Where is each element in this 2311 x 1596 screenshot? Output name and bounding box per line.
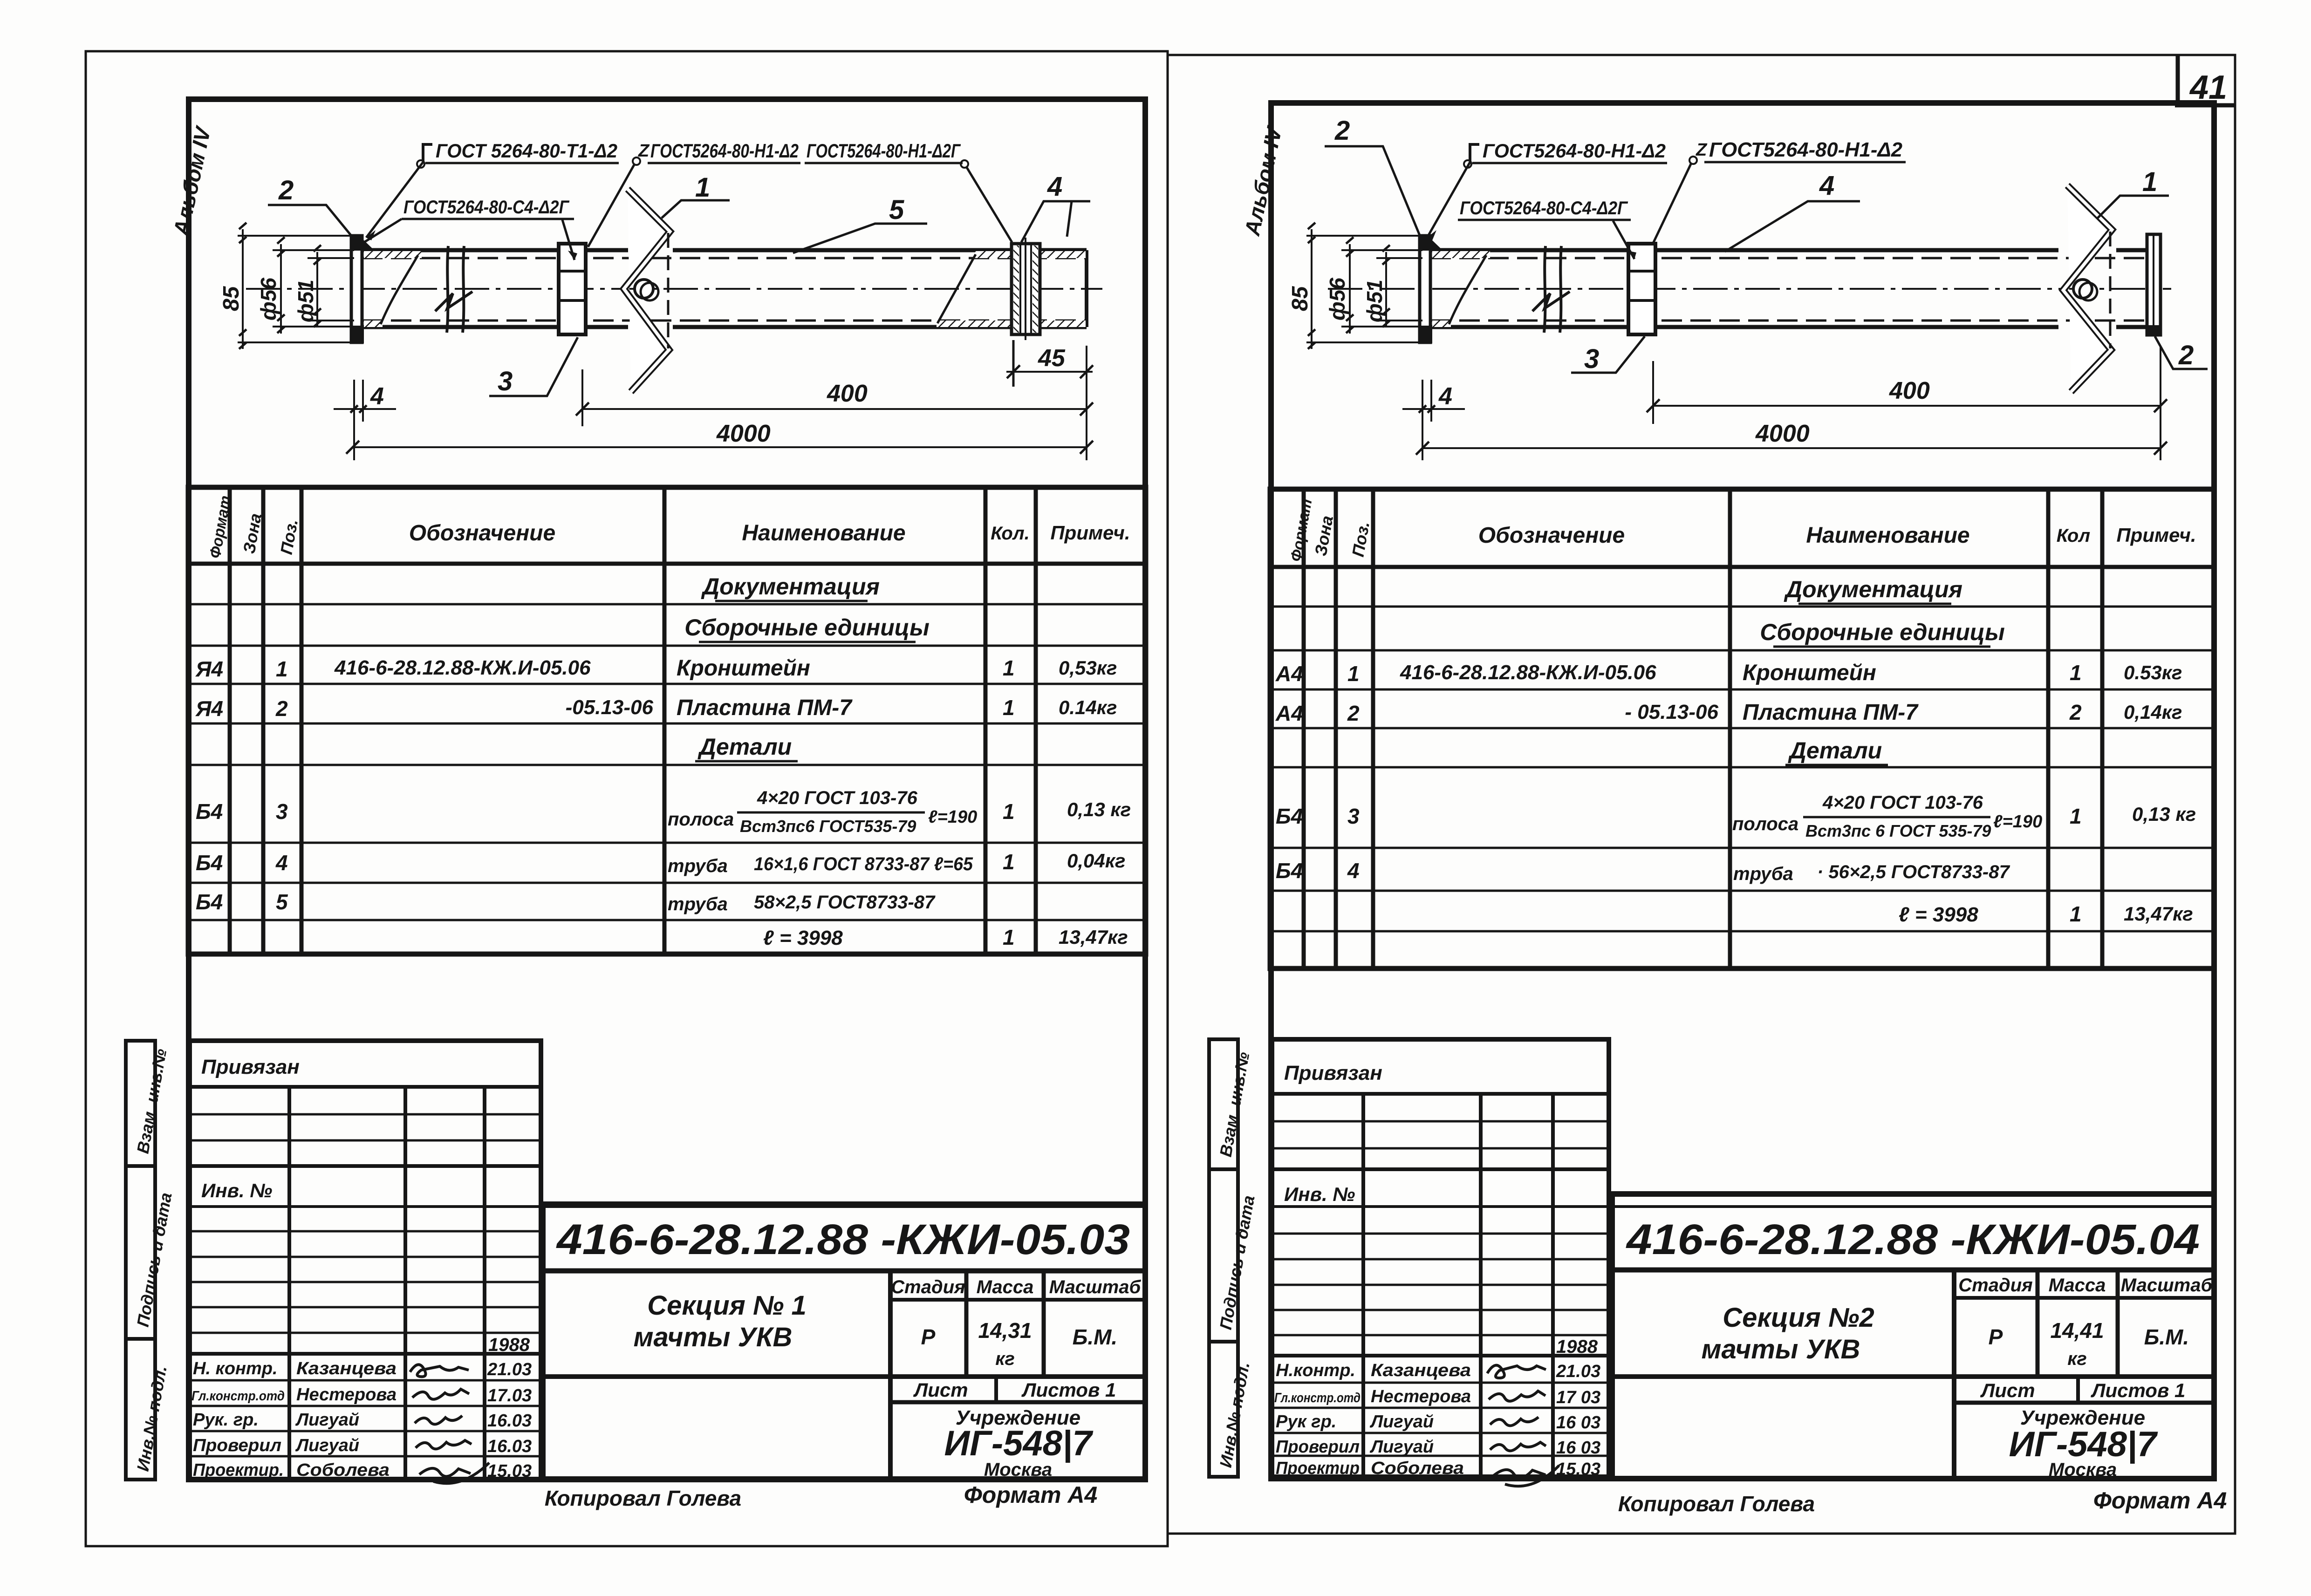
svg-text:2: 2 [2178,340,2194,370]
svg-text:ф56: ф56 [256,278,280,321]
svg-text:Привязан: Привязан [1284,1062,1382,1084]
svg-text:1: 1 [1003,850,1015,874]
svg-text:21.03: 21.03 [487,1360,532,1379]
svg-text:1: 1 [695,172,710,203]
svg-text:Р: Р [921,1325,936,1349]
svg-text:Наименование: Наименование [742,521,905,546]
svg-text:Привязан: Привязан [201,1056,300,1078]
svg-text:16 03: 16 03 [1556,1413,1600,1432]
svg-text:85: 85 [219,286,244,311]
svg-text:2: 2 [2069,700,2082,724]
svg-text:ℓ = 3998: ℓ = 3998 [1899,903,1978,926]
svg-text:Лигуай: Лигуай [295,1436,359,1455]
svg-text:2: 2 [1347,701,1360,725]
svg-text:Б4: Б4 [196,851,223,875]
svg-text:Лигуай: Лигуай [1369,1437,1434,1457]
svg-text:Наименование: Наименование [1806,523,1969,548]
svg-text:2: 2 [1334,116,1350,146]
svg-text:0,13 кг: 0,13 кг [2132,803,2196,825]
svg-text:5: 5 [276,890,288,914]
svg-text:полоса: полоса [1732,814,1798,834]
svg-text:1: 1 [2070,661,2082,685]
svg-text:Лигуай: Лигуай [1369,1412,1434,1432]
svg-text:16×1,6 ГОСТ 8733-87 ℓ=65: 16×1,6 ГОСТ 8733-87 ℓ=65 [754,854,973,874]
svg-text:Проектир.: Проектир. [193,1460,284,1480]
svg-text:Гл.констр.отд: Гл.констр.отд [1274,1391,1361,1405]
svg-text:58×2,5 ГОСТ8733-87: 58×2,5 ГОСТ8733-87 [754,892,936,913]
svg-text:Р: Р [1989,1325,2003,1349]
svg-text:1988: 1988 [1556,1337,1598,1357]
svg-text:ИГ-548|7: ИГ-548|7 [944,1424,1094,1463]
svg-text:Формат А4: Формат А4 [964,1482,1098,1508]
svg-text:Б.М.: Б.М. [2144,1325,2189,1349]
svg-text:4×20 ГОСТ 103-76: 4×20 ГОСТ 103-76 [1822,792,1983,813]
svg-text:16.03: 16.03 [487,1437,532,1456]
svg-text:Детали: Детали [1788,737,1882,764]
svg-text:ф51: ф51 [294,280,318,322]
svg-text:4: 4 [1819,171,1834,201]
svg-text:Кол.: Кол. [991,523,1030,544]
svg-text:85: 85 [1288,286,1313,311]
svg-text:4: 4 [1438,383,1452,410]
svg-text:3: 3 [1584,344,1599,374]
svg-text:14,41: 14,41 [2050,1318,2104,1343]
svg-text:3: 3 [276,799,288,824]
svg-text:А4: А4 [1275,662,1303,686]
svg-text:Копировал Голева: Копировал Голева [545,1486,741,1510]
svg-text:Москва: Москва [2049,1460,2117,1480]
svg-text:труба: труба [668,894,728,914]
svg-text:А4: А4 [1275,701,1303,725]
svg-text:Н.контр.: Н.контр. [1276,1361,1355,1380]
svg-text:ГОСТ5264-80-С4-Δ2Г: ГОСТ5264-80-С4-Δ2Г [403,197,570,218]
svg-text:Сборочные единицы: Сборочные единицы [1760,619,2005,645]
svg-text:4: 4 [1347,859,1360,883]
svg-text:Я4: Я4 [195,657,223,681]
svg-text:Сборочные единицы: Сборочные единицы [684,614,930,641]
svg-text:ℓ=190: ℓ=190 [1993,812,2042,832]
svg-text:400: 400 [1889,377,1930,404]
svg-text:Пластина ПМ-7: Пластина ПМ-7 [677,696,853,720]
svg-text:Б4: Б4 [196,890,223,914]
svg-text:21.03: 21.03 [1556,1362,1600,1381]
svg-text:13,47кг: 13,47кг [1059,926,1128,948]
svg-text:Кронштейн: Кронштейн [1743,661,1876,685]
svg-text:416-6-28.12.88 -КЖИ-05.03: 416-6-28.12.88 -КЖИ-05.03 [556,1216,1130,1263]
svg-text:полоса: полоса [668,809,734,830]
svg-text:Формат А4: Формат А4 [2093,1487,2227,1514]
svg-text:Примеч.: Примеч. [1050,522,1130,544]
svg-text:14,31: 14,31 [978,1318,1032,1343]
svg-text:1: 1 [1003,656,1015,680]
svg-text:труба: труба [1733,864,1793,884]
svg-text:1: 1 [2142,167,2157,197]
svg-text:1: 1 [1003,696,1015,720]
svg-text:Н. контр.: Н. контр. [193,1359,278,1378]
svg-text:0,04кг: 0,04кг [1067,850,1125,872]
svg-text:Рук. гр.: Рук. гр. [193,1410,259,1430]
svg-text:Б4: Б4 [1276,804,1303,828]
svg-text:2: 2 [278,175,294,205]
svg-text:0,14кг: 0,14кг [2124,701,2182,723]
svg-text:4: 4 [275,851,288,875]
svg-text:Гл.констр.отд: Гл.констр.отд [191,1389,285,1404]
svg-text:Z: Z [1696,140,1708,160]
svg-text:0.53кг: 0.53кг [2124,662,2182,683]
svg-text:Я4: Я4 [195,696,223,721]
svg-text:Копировал Голева: Копировал Голева [1618,1492,1815,1516]
svg-text:ГОСТ5264-80-Н1-Δ2: ГОСТ5264-80-Н1-Δ2 [1709,138,1903,161]
svg-text:416-6-28.12.88-КЖ.И-05.06: 416-6-28.12.88-КЖ.И-05.06 [1400,661,1656,684]
svg-text:Соболева: Соболева [1371,1459,1464,1478]
svg-text:17 03: 17 03 [1556,1388,1600,1407]
svg-text:2: 2 [275,696,288,721]
svg-text:ГОСТ5264-80-Н1-Δ2: ГОСТ5264-80-Н1-Δ2 [650,140,799,162]
svg-text:ф56: ф56 [1325,278,1349,321]
svg-text:4000: 4000 [1755,420,1810,447]
svg-text:ГОСТ5264-80-Н1-Δ2: ГОСТ5264-80-Н1-Δ2 [1483,140,1666,162]
svg-text:Б4: Б4 [196,799,223,824]
svg-text:0,13 кг: 0,13 кг [1067,798,1131,820]
svg-text:· 56×2,5 ГОСТ8733-87: · 56×2,5 ГОСТ8733-87 [1817,862,2010,882]
svg-text:13,47кг: 13,47кг [2124,903,2193,925]
svg-text:Б.М.: Б.М. [1073,1325,1117,1349]
svg-text:4: 4 [1047,171,1062,202]
svg-text:416-6-28.12.88 -КЖИ-05.04: 416-6-28.12.88 -КЖИ-05.04 [1626,1216,2200,1263]
svg-text:Казанцева: Казанцева [1371,1361,1471,1380]
svg-text:Z: Z [638,141,650,161]
svg-text:-05.13-06: -05.13-06 [566,696,654,719]
svg-text:Масштаб: Масштаб [2121,1275,2213,1296]
svg-text:труба: труба [668,856,728,876]
svg-text:Кронштейн: Кронштейн [677,656,810,681]
svg-text:Детали: Детали [697,734,792,760]
svg-text:5: 5 [889,195,904,225]
svg-text:0.14кг: 0.14кг [1059,696,1117,718]
svg-text:Казанцева: Казанцева [296,1359,397,1378]
svg-text:Пластина ПМ-7: Пластина ПМ-7 [1743,700,1919,725]
svg-text:Нестерова: Нестерова [1371,1387,1471,1406]
svg-text:1988: 1988 [488,1335,530,1355]
svg-text:15.03: 15.03 [1556,1460,1600,1479]
svg-text:Москва: Москва [984,1460,1052,1480]
svg-text:Документация: Документация [1784,576,1962,602]
svg-text:Инв. №: Инв. № [1284,1183,1355,1205]
svg-text:4000: 4000 [716,420,771,447]
svg-text:1: 1 [2070,804,2082,828]
svg-text:мачты УКВ: мачты УКВ [634,1322,793,1352]
svg-text:ф51: ф51 [1362,280,1387,322]
svg-text:Проверил: Проверил [1276,1437,1360,1457]
svg-text:Секция № 1: Секция № 1 [647,1290,807,1321]
svg-text:400: 400 [827,380,868,407]
svg-text:ℓ = 3998: ℓ = 3998 [763,927,843,949]
svg-text:0,53кг: 0,53кг [1059,657,1117,679]
svg-text:Лист: Лист [913,1379,968,1401]
svg-text:Проверил: Проверил [193,1436,281,1455]
svg-text:Стадия: Стадия [1958,1275,2032,1296]
svg-text:Инв. №: Инв. № [201,1180,272,1201]
svg-text:Нестерова: Нестерова [296,1385,397,1405]
svg-text:1: 1 [1003,925,1015,949]
svg-text:4: 4 [370,383,384,410]
svg-text:мачты УКВ: мачты УКВ [1702,1334,1860,1364]
svg-text:Листов 1: Листов 1 [2091,1379,2186,1401]
svg-text:Рук гр.: Рук гр. [1276,1412,1336,1432]
svg-text:416-6-28.12.88-КЖ.И-05.06: 416-6-28.12.88-КЖ.И-05.06 [334,656,591,679]
svg-text:16 03: 16 03 [1556,1438,1600,1458]
svg-text:45: 45 [1038,345,1066,372]
svg-text:3: 3 [1347,804,1360,828]
svg-text:3: 3 [498,366,513,396]
svg-text:Секция №2: Секция №2 [1723,1303,1874,1333]
svg-text:Проектир: Проектир [1276,1459,1360,1478]
svg-text:4×20 ГОСТ 103-76: 4×20 ГОСТ 103-76 [757,788,918,808]
svg-text:кг: кг [2067,1349,2087,1369]
svg-text:16.03: 16.03 [487,1411,532,1431]
svg-text:Масштаб: Масштаб [1049,1277,1142,1297]
svg-text:Лигуай: Лигуай [295,1410,359,1430]
svg-text:1: 1 [1347,662,1360,686]
svg-text:Примеч.: Примеч. [2116,524,2196,546]
svg-text:Обозначение: Обозначение [409,521,555,546]
svg-text:Б4: Б4 [1276,859,1303,883]
svg-text:Листов 1: Листов 1 [1021,1379,1116,1401]
svg-text:Обозначение: Обозначение [1478,523,1625,548]
svg-text:Документация: Документация [701,573,880,600]
svg-text:Вст3пс6 ГОСТ535-79: Вст3пс6 ГОСТ535-79 [740,817,916,836]
svg-text:Масса: Масса [977,1277,1034,1297]
svg-text:Масса: Масса [2049,1275,2106,1296]
svg-text:ГОСТ5264-80-Н1-Δ2Г: ГОСТ5264-80-Н1-Δ2Г [807,140,961,162]
svg-text:ИГ-548|7: ИГ-548|7 [2009,1425,2159,1464]
svg-text:15.03: 15.03 [487,1461,532,1481]
svg-text:Лист: Лист [1980,1379,2035,1401]
svg-text:- 05.13-06: - 05.13-06 [1625,701,1718,723]
svg-text:ГОСТ 5264-80-Т1-Δ2: ГОСТ 5264-80-Т1-Δ2 [436,140,617,162]
svg-text:Кол: Кол [2057,525,2091,546]
svg-text:1: 1 [276,657,288,681]
svg-text:кг: кг [995,1349,1015,1369]
svg-text:1: 1 [1003,799,1015,824]
svg-text:ГОСТ5264-80-С4-Δ2Г: ГОСТ5264-80-С4-Δ2Г [1460,198,1628,218]
svg-text:17.03: 17.03 [487,1386,532,1405]
svg-text:Стадия: Стадия [891,1277,965,1297]
svg-text:1: 1 [2070,902,2082,926]
svg-text:Соболева: Соболева [296,1460,390,1480]
svg-text:ℓ=190: ℓ=190 [928,807,977,827]
svg-text:Вст3пс 6 ГОСТ 535-79: Вст3пс 6 ГОСТ 535-79 [1805,821,1991,840]
